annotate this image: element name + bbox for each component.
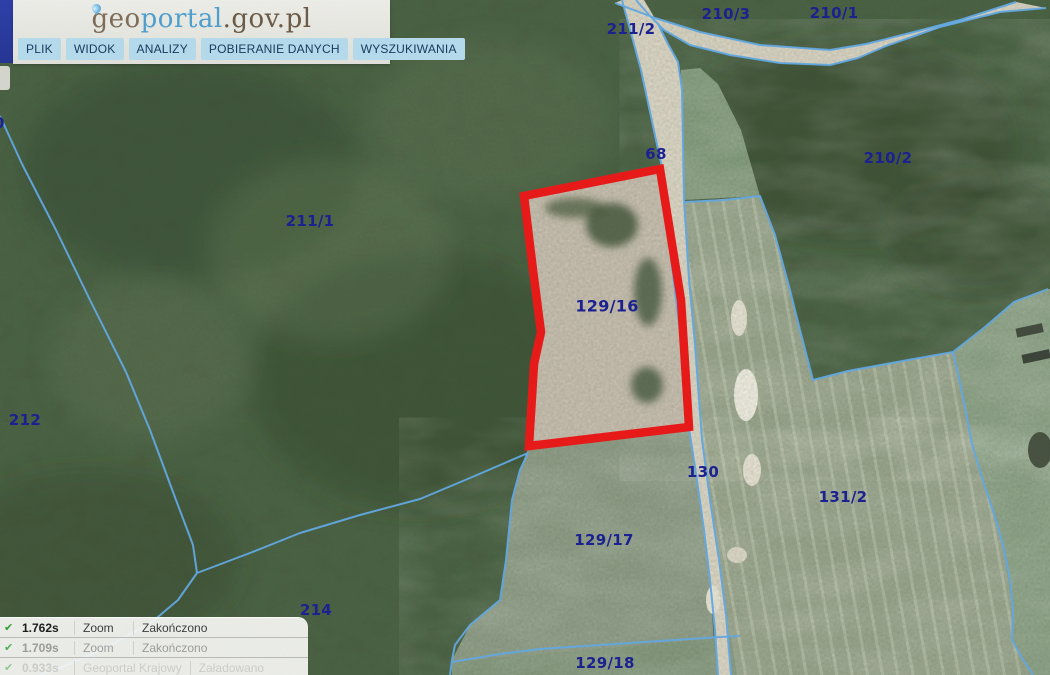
- parcel-label-210-2: 210/2: [864, 149, 913, 167]
- check-icon: ✔: [4, 641, 22, 654]
- logo-suffix: .gov.pl: [223, 4, 312, 34]
- menu-widok[interactable]: WIDOK: [66, 38, 124, 60]
- logo-portal: portal: [141, 4, 223, 34]
- log-action: Zoom: [74, 621, 133, 635]
- header-panel: geoportal.gov.pl PLIK WIDOK ANALIZY POBI…: [13, 0, 390, 64]
- main-menu: PLIK WIDOK ANALIZY POBIERANIE DANYCH WYS…: [18, 38, 465, 60]
- log-status: Załadowano: [190, 661, 272, 675]
- parcel-label-211-1: 211/1: [286, 212, 335, 230]
- menu-analizy[interactable]: ANALIZY: [129, 38, 196, 60]
- log-time: 0.933s: [22, 661, 74, 675]
- log-entry-2: ✔ 1.709s Zoom Zakończono: [0, 638, 308, 658]
- check-icon: ✔: [4, 621, 22, 634]
- geoportal-logo[interactable]: geoportal.gov.pl: [91, 4, 311, 34]
- parcel-label-210-1: 210/1: [810, 4, 859, 22]
- log-entry-3: ✔ 0.933s Geoportal Krajowy Załadowano: [0, 658, 308, 675]
- log-time: 1.709s: [22, 641, 74, 655]
- aerial-map[interactable]: [0, 0, 1050, 675]
- menu-pobieranie-danych[interactable]: POBIERANIE DANYCH: [201, 38, 348, 60]
- log-time: 1.762s: [22, 621, 74, 635]
- parcel-label-129-16: 129/16: [575, 297, 638, 316]
- parcel-label-129-17: 129/17: [574, 531, 633, 549]
- parcel-label-129-18: 129/18: [575, 654, 634, 672]
- log-action: Geoportal Krajowy: [74, 661, 190, 675]
- log-action: Zoom: [74, 641, 133, 655]
- check-icon: ✔: [4, 661, 22, 674]
- collapsed-panel-fragment: [0, 66, 10, 90]
- log-status: Zakończono: [133, 641, 215, 655]
- parcel-label-131-2: 131/2: [819, 488, 868, 506]
- parcel-label-68: 68: [645, 145, 666, 163]
- menu-wyszukiwania[interactable]: WYSZUKIWANIA: [353, 38, 465, 60]
- menu-plik[interactable]: PLIK: [18, 38, 61, 60]
- log-status: Zakończono: [133, 621, 215, 635]
- parcel-label-214: 214: [300, 601, 332, 619]
- parcel-label-210-3: 210/3: [702, 5, 751, 23]
- status-log-panel: ✔ 1.762s Zoom Zakończono ✔ 1.709s Zoom Z…: [0, 617, 308, 675]
- parcel-label-212: 212: [9, 411, 41, 429]
- parcel-label-211-2: 211/2: [607, 20, 656, 38]
- geoportal-app: 211/2 210/3 210/1 68 210/2 211/1 212 129…: [0, 0, 1050, 675]
- parcel-label-cut-left: 0: [0, 114, 5, 132]
- parcel-label-130: 130: [687, 463, 719, 481]
- sidebar-strip[interactable]: [0, 0, 13, 63]
- log-entry-1: ✔ 1.762s Zoom Zakończono: [0, 618, 308, 638]
